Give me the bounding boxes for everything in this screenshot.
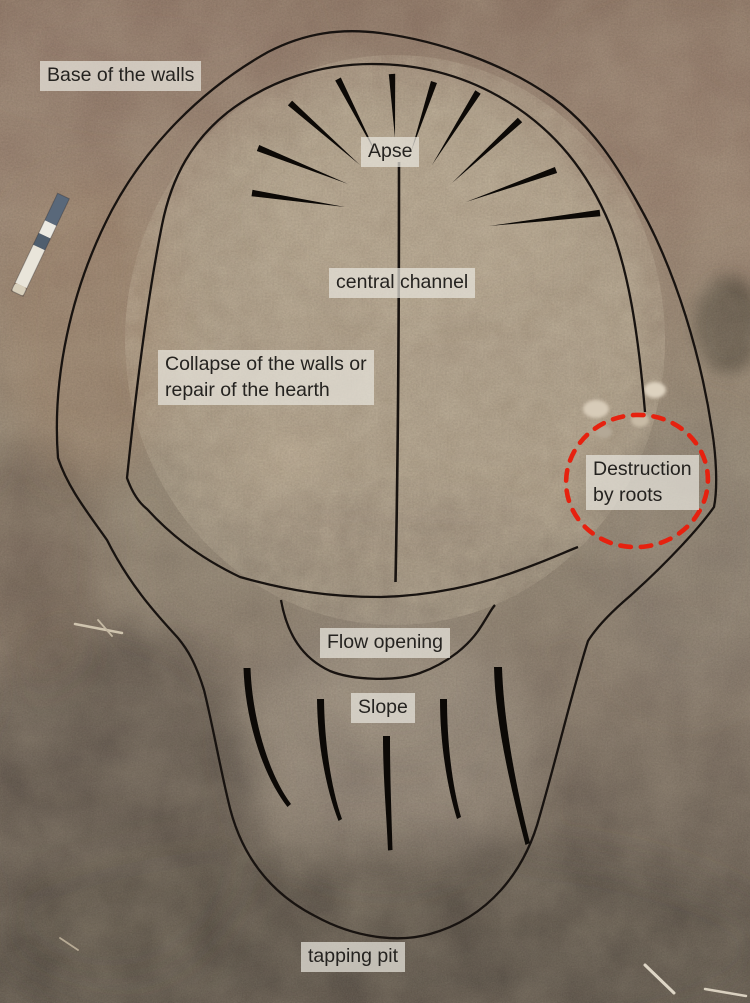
label-tapping-pit: tapping pit <box>301 942 405 972</box>
annotated-excavation-figure: Base of the walls Apse central channel C… <box>0 0 750 1003</box>
label-apse: Apse <box>361 137 419 167</box>
label-destruction-line2: by roots <box>593 483 692 509</box>
label-destruction-line1: Destruction <box>593 457 692 483</box>
label-destruction: Destruction by roots <box>586 455 699 510</box>
label-central-channel: central channel <box>329 268 475 298</box>
label-flow-opening: Flow opening <box>320 628 450 658</box>
label-collapse-line2: repair of the hearth <box>165 378 367 404</box>
label-collapse-line1: Collapse of the walls or <box>165 352 367 378</box>
label-collapse: Collapse of the walls or repair of the h… <box>158 350 374 405</box>
label-base-of-walls: Base of the walls <box>40 61 201 91</box>
label-slope: Slope <box>351 693 415 723</box>
